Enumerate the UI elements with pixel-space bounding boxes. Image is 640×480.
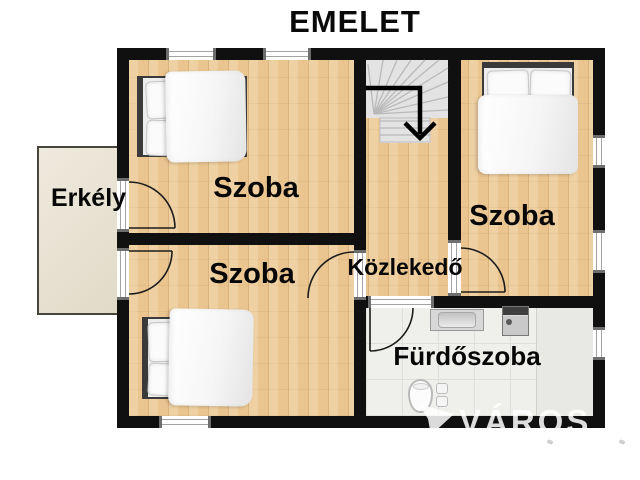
window-top-2	[263, 48, 311, 60]
shower-area	[536, 308, 594, 416]
washing-machine-knob	[506, 319, 512, 325]
balcony-area	[37, 146, 121, 315]
room-label-hallway: Közlekedő	[347, 254, 462, 281]
toilet-flush-button-1	[436, 383, 448, 394]
toilet-seat	[413, 383, 429, 390]
watermark-text: VÁROS	[459, 403, 591, 441]
door-frame-bathroom	[368, 296, 434, 308]
room-label-balcony: Erkély	[51, 184, 126, 213]
window-bottom	[159, 416, 211, 428]
bed-right-duvet	[478, 95, 578, 174]
room-label-bedroom-right: Szoba	[469, 200, 554, 233]
washing-machine-panel	[503, 307, 528, 316]
door-frame-balcony-2	[117, 248, 129, 300]
wall-left	[117, 48, 129, 428]
wall-stairwell-right	[448, 48, 461, 240]
staircase-upper-flight	[366, 60, 448, 118]
wall-stairwell-left-upper	[354, 48, 366, 250]
room-label-bedroom-top: Szoba	[213, 172, 298, 205]
toilet-flush-button-2	[436, 396, 448, 407]
bed-top-duvet	[165, 70, 247, 162]
window-right-2	[593, 230, 605, 273]
watermark-artifact-1	[546, 439, 553, 445]
window-bathroom	[593, 327, 605, 360]
bed-bottom-duvet	[168, 308, 254, 406]
room-label-bedroom-bottom: Szoba	[209, 258, 294, 291]
window-right-1	[593, 135, 605, 168]
window-top-1	[166, 48, 216, 60]
staircase-lower-flight	[380, 118, 430, 143]
wall-bathroom-left	[354, 300, 366, 416]
page-title: EMELET	[289, 4, 421, 40]
watermark-artifact-2	[618, 439, 625, 445]
washing-machine	[502, 306, 529, 336]
room-label-bathroom: Fürdőszoba	[393, 341, 540, 372]
washbasin-sink	[438, 312, 476, 328]
floor-plan-page: EMELET Erkély	[0, 0, 640, 480]
wall-bedroom-divider	[129, 233, 366, 245]
